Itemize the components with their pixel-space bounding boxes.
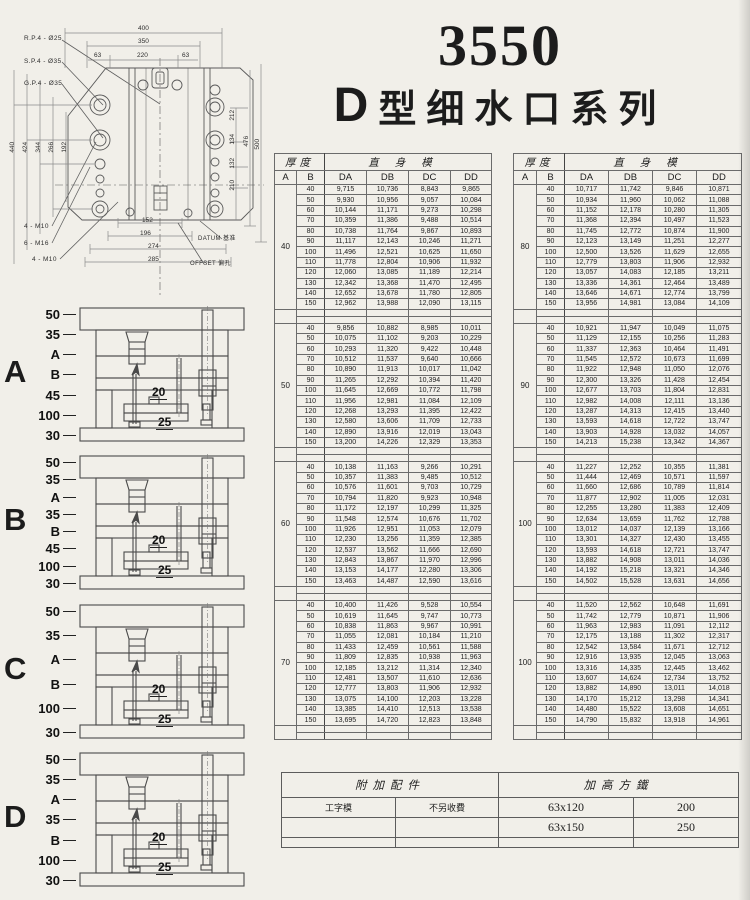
spec-value: 11,470 xyxy=(409,278,451,288)
spec-row: 13012,58013,60611,70912,733 xyxy=(275,417,492,427)
spec-row: 40409,71510,7368,8439,865 xyxy=(275,185,492,195)
spec-row: 11013,30114,32712,43013,455 xyxy=(514,535,742,545)
spec-value: 13,063 xyxy=(697,653,742,663)
spec-value: 13,301 xyxy=(565,535,609,545)
spec-value: 13,326 xyxy=(609,375,653,385)
thickness-b-value: 60 xyxy=(297,483,325,493)
thickness-b-value: 140 xyxy=(537,427,565,437)
thickness-b-value: 50 xyxy=(537,334,565,344)
spec-value: 11,906 xyxy=(697,611,742,621)
thickness-b-value: 150 xyxy=(537,576,565,586)
spec-value: 12,542 xyxy=(565,642,609,652)
spec-value: 12,686 xyxy=(609,483,653,493)
spec-value: 12,409 xyxy=(697,503,742,513)
spec-value: 9,485 xyxy=(409,472,451,482)
thickness-b-value: 90 xyxy=(537,375,565,385)
thickness-b-value: 40 xyxy=(537,185,565,195)
dimension-label: 100 xyxy=(24,854,76,867)
spec-row: 5011,74212,77910,87111,906 xyxy=(514,611,742,621)
spec-value: 13,988 xyxy=(367,299,409,309)
spec-value: 12,652 xyxy=(325,288,367,298)
spec-value: 10,229 xyxy=(451,334,492,344)
thickness-a-value: 40 xyxy=(275,185,297,310)
thickness-b-value: 130 xyxy=(297,694,325,704)
thickness-b-value: 50 xyxy=(537,611,565,621)
spec-row: 14014,48015,52213,60814,651 xyxy=(514,704,742,714)
inner-dim-20: 20 xyxy=(150,386,167,400)
inner-dim-20: 20 xyxy=(150,534,167,548)
spec-value: 10,938 xyxy=(409,653,451,663)
spec-value: 11,053 xyxy=(409,524,451,534)
thickness-b-value: 140 xyxy=(297,427,325,437)
spec-value: 11,820 xyxy=(367,493,409,503)
mold-section-a: A 5035AB4510030 xyxy=(4,302,266,450)
spec-row: 6011,15212,17810,28011,305 xyxy=(514,205,742,215)
spec-row: 9011,26512,29210,39411,420 xyxy=(275,375,492,385)
spec-value: 10,576 xyxy=(325,483,367,493)
spec-value: 10,512 xyxy=(451,472,492,482)
spec-value: 12,430 xyxy=(653,535,697,545)
spec-value: 10,794 xyxy=(325,493,367,503)
spec-value: 14,480 xyxy=(565,704,609,714)
mold-section-b: B 5035A35B4510030 xyxy=(4,450,266,598)
thickness-b-value: 100 xyxy=(297,663,325,673)
spec-row: 12013,59314,61812,72113,747 xyxy=(514,545,742,555)
spec-value: 13,032 xyxy=(653,427,697,437)
spec-value: 13,342 xyxy=(653,437,697,447)
spec-value: 11,428 xyxy=(653,375,697,385)
spec-value: 13,903 xyxy=(565,427,609,437)
spec-value: 10,062 xyxy=(653,195,697,205)
spec-row: 509,93010,9569,05710,084 xyxy=(275,195,492,205)
spec-value: 11,383 xyxy=(367,472,409,482)
dim-220: 220 xyxy=(137,53,148,60)
spec-value: 10,571 xyxy=(653,472,697,482)
screw-note-4m10-upper: 4 - M10 xyxy=(24,224,49,231)
thickness-b-value: 50 xyxy=(297,611,325,621)
dimension-label: A xyxy=(24,348,76,361)
spec-value: 12,255 xyxy=(565,503,609,513)
spec-value: 12,590 xyxy=(409,576,451,586)
spec-value: 14,313 xyxy=(609,406,653,416)
spec-value: 12,317 xyxy=(697,632,742,642)
spec-value: 10,838 xyxy=(325,621,367,631)
dimension-label: B xyxy=(24,678,76,691)
thickness-b-value: 50 xyxy=(537,472,565,482)
spec-value: 12,916 xyxy=(565,653,609,663)
spec-value: 10,075 xyxy=(325,334,367,344)
thickness-b-value: 50 xyxy=(297,334,325,344)
spec-value: 9,422 xyxy=(409,344,451,354)
spec-value: 15,832 xyxy=(609,715,653,725)
spec-value: 11,537 xyxy=(367,354,409,364)
spec-value: 13,538 xyxy=(451,704,492,714)
spec-value: 13,747 xyxy=(697,545,742,555)
spec-value: 13,608 xyxy=(653,704,697,714)
col-header-dd: DD xyxy=(697,171,742,185)
thickness-b-value: 80 xyxy=(537,226,565,236)
spec-value: 11,426 xyxy=(367,601,409,611)
section-dimension-stack: 5035AB10030 xyxy=(24,605,76,739)
spec-value: 12,948 xyxy=(609,365,653,375)
thickness-b-value: 40 xyxy=(537,462,565,472)
dimension-label: 30 xyxy=(24,429,76,442)
spec-value: 13,752 xyxy=(697,673,742,683)
dimension-label: 50 xyxy=(24,308,76,321)
spacer-row xyxy=(275,732,492,739)
spec-value: 12,634 xyxy=(565,514,609,524)
spec-row: 1004011,22712,25210,35511,381 xyxy=(514,462,742,472)
thickness-b-value: 150 xyxy=(297,437,325,447)
spec-value: 10,736 xyxy=(367,185,409,195)
spec-value: 14,335 xyxy=(609,663,653,673)
spec-value: 11,359 xyxy=(409,535,451,545)
riser-size: 63x120 xyxy=(499,798,634,818)
spec-value: 11,778 xyxy=(325,257,367,267)
spec-value: 10,448 xyxy=(451,344,492,354)
spec-row: 12013,88214,89013,01114,018 xyxy=(514,684,742,694)
spec-value: 12,779 xyxy=(565,257,609,267)
spec-value: 11,251 xyxy=(653,236,697,246)
spec-value: 10,246 xyxy=(409,236,451,246)
spec-value: 8,985 xyxy=(409,323,451,333)
spec-value: 13,316 xyxy=(565,663,609,673)
thickness-b-value: 100 xyxy=(537,663,565,673)
spec-value: 10,011 xyxy=(451,323,492,333)
spec-value: 14,341 xyxy=(697,694,742,704)
spec-value: 14,487 xyxy=(367,576,409,586)
spec-value: 10,666 xyxy=(451,354,492,364)
thickness-b-value: 100 xyxy=(297,386,325,396)
spec-value: 12,340 xyxy=(451,663,492,673)
spec-value: 12,513 xyxy=(409,704,451,714)
spec-value: 13,043 xyxy=(451,427,492,437)
spec-value: 13,085 xyxy=(367,268,409,278)
spec-value: 9,967 xyxy=(409,621,451,631)
spec-value: 13,631 xyxy=(653,576,697,586)
spec-table-left: 厚度 直身模 A B DA DB DC DD 40409,71510,7368,… xyxy=(274,153,492,740)
catalog-page: 3550 D 型细水口系列 xyxy=(0,0,750,900)
spec-value: 14,037 xyxy=(609,524,653,534)
spec-row: 14013,38514,41012,51313,538 xyxy=(275,704,492,714)
spec-value: 13,848 xyxy=(451,715,492,725)
spec-value: 11,491 xyxy=(697,344,742,354)
spec-row: 8012,25513,28011,38312,409 xyxy=(514,503,742,513)
spec-value: 12,454 xyxy=(697,375,742,385)
spec-value: 9,747 xyxy=(409,611,451,621)
dimension-label: 35 xyxy=(24,773,76,786)
spec-row: 604010,13811,1639,26610,291 xyxy=(275,462,492,472)
spec-value: 11,588 xyxy=(451,642,492,652)
spec-value: 11,189 xyxy=(409,268,451,278)
dim-500: 500 xyxy=(255,139,262,150)
spec-value: 12,982 xyxy=(565,396,609,406)
spec-value: 13,012 xyxy=(565,524,609,534)
spec-value: 11,420 xyxy=(451,375,492,385)
spec-value: 13,188 xyxy=(609,632,653,642)
spec-value: 10,956 xyxy=(367,195,409,205)
spec-value: 10,906 xyxy=(409,257,451,267)
dim-274: 274 xyxy=(148,244,159,251)
thickness-b-value: 100 xyxy=(537,524,565,534)
spec-value: 13,882 xyxy=(565,555,609,565)
spec-value: 11,117 xyxy=(325,236,367,246)
spec-value: 9,856 xyxy=(325,323,367,333)
thickness-b-value: 150 xyxy=(537,715,565,725)
spec-value: 11,742 xyxy=(609,185,653,195)
spec-row: 9012,63413,65911,76212,788 xyxy=(514,514,742,524)
spec-value: 10,882 xyxy=(367,323,409,333)
dimension-label: 100 xyxy=(24,409,76,422)
spec-value: 12,774 xyxy=(653,288,697,298)
thickness-b-value: 80 xyxy=(297,642,325,652)
spec-row: 804010,71711,7429,84610,871 xyxy=(514,185,742,195)
spec-value: 12,469 xyxy=(609,472,653,482)
series-letter: D xyxy=(334,82,369,130)
spec-value: 12,902 xyxy=(609,493,653,503)
spec-value: 12,155 xyxy=(609,334,653,344)
spec-value: 11,088 xyxy=(697,195,742,205)
thickness-b-value: 90 xyxy=(537,236,565,246)
thickness-a-value: 50 xyxy=(275,323,297,448)
spec-value: 14,327 xyxy=(609,535,653,545)
spec-value: 13,149 xyxy=(609,236,653,246)
spec-value: 13,368 xyxy=(367,278,409,288)
thickness-header: 厚度 xyxy=(275,154,325,171)
thickness-b-value: 40 xyxy=(297,185,325,195)
spec-row: 7010,35911,3869,48810,514 xyxy=(275,216,492,226)
spec-row: 8012,54213,58411,67112,712 xyxy=(514,642,742,652)
spec-row: 14013,15314,17712,28013,306 xyxy=(275,566,492,576)
thickness-b-value: 120 xyxy=(537,406,565,416)
spec-value: 13,646 xyxy=(565,288,609,298)
spec-row: 11011,95612,98111,08412,109 xyxy=(275,396,492,406)
dimension-label: 35 xyxy=(24,508,76,521)
dimension-label: B xyxy=(24,525,76,538)
spec-row: 10012,18513,21211,31412,340 xyxy=(275,663,492,673)
col-header-dd: DD xyxy=(451,171,492,185)
spec-value: 14,367 xyxy=(697,437,742,447)
thickness-b-value: 90 xyxy=(297,375,325,385)
thickness-b-value: 140 xyxy=(537,566,565,576)
spec-value: 11,381 xyxy=(697,462,742,472)
spec-row: 6010,14411,1719,27310,298 xyxy=(275,205,492,215)
thickness-b-value: 70 xyxy=(537,632,565,642)
spec-value: 12,060 xyxy=(325,268,367,278)
spec-value: 11,496 xyxy=(325,247,367,257)
spec-value: 10,874 xyxy=(653,226,697,236)
dim-285: 285 xyxy=(148,257,159,264)
spec-value: 9,867 xyxy=(409,226,451,236)
thickness-b-value: 120 xyxy=(297,268,325,278)
dimension-label: 35 xyxy=(24,328,76,341)
spec-value: 11,922 xyxy=(565,365,609,375)
spec-value: 11,691 xyxy=(697,601,742,611)
spec-value: 11,302 xyxy=(653,632,697,642)
spec-value: 11,325 xyxy=(451,503,492,513)
spec-value: 12,805 xyxy=(451,288,492,298)
mold-section-c: C 5035AB10030 xyxy=(4,599,266,747)
spec-value: 13,321 xyxy=(653,566,697,576)
spec-value: 13,799 xyxy=(697,288,742,298)
thickness-b-value: 130 xyxy=(537,417,565,427)
spec-row: 6010,83811,8639,96710,991 xyxy=(275,621,492,631)
straight-mold-header: 直身模 xyxy=(565,154,742,171)
col-header-dc: DC xyxy=(409,171,451,185)
thickness-b-value: 60 xyxy=(537,344,565,354)
spec-value: 13,075 xyxy=(325,694,367,704)
spec-row: 15012,96213,98812,09013,115 xyxy=(275,299,492,309)
spec-value: 9,715 xyxy=(325,185,367,195)
thickness-b-value: 110 xyxy=(537,535,565,545)
spec-value: 13,166 xyxy=(697,524,742,534)
spacer-row xyxy=(514,309,742,316)
spec-row: 11012,48113,50711,61012,636 xyxy=(275,673,492,683)
riser-price: 250 xyxy=(634,818,739,838)
spec-value: 13,462 xyxy=(697,663,742,673)
spec-row: 12013,05714,08312,18513,211 xyxy=(514,268,742,278)
spec-row: 7010,79411,8209,92310,948 xyxy=(275,493,492,503)
col-header-a: A xyxy=(514,171,537,185)
riser-size: 63x150 xyxy=(499,818,634,838)
spec-value: 11,601 xyxy=(367,483,409,493)
spec-value: 13,616 xyxy=(451,576,492,586)
spec-value: 13,916 xyxy=(367,427,409,437)
spec-value: 12,951 xyxy=(367,524,409,534)
spec-value: 12,572 xyxy=(609,354,653,364)
spec-value: 11,814 xyxy=(697,483,742,493)
spec-value: 12,111 xyxy=(653,396,697,406)
dim-476: 476 xyxy=(244,136,251,147)
dimension-label: A xyxy=(24,793,76,806)
spec-value: 11,075 xyxy=(697,323,742,333)
callout-support-pin: S.P.4 - Ø35 xyxy=(24,59,62,66)
spec-value: 12,385 xyxy=(451,535,492,545)
spec-value: 15,212 xyxy=(609,694,653,704)
spec-value: 14,226 xyxy=(367,437,409,447)
spec-value: 10,084 xyxy=(451,195,492,205)
screw-note-6m16: 6 - M16 xyxy=(24,241,49,248)
spec-value: 10,871 xyxy=(653,611,697,621)
spacer-row xyxy=(514,594,742,601)
spec-value: 11,645 xyxy=(325,386,367,396)
thickness-b-value: 60 xyxy=(297,621,325,631)
section-dimension-stack: 5035A35B10030 xyxy=(24,753,76,887)
spec-value: 12,214 xyxy=(451,268,492,278)
spec-value: 11,163 xyxy=(367,462,409,472)
spec-value: 14,656 xyxy=(697,576,742,586)
spec-value: 11,050 xyxy=(653,365,697,375)
spec-value: 12,932 xyxy=(697,257,742,267)
spec-value: 13,084 xyxy=(653,299,697,309)
thickness-b-value: 120 xyxy=(297,406,325,416)
spec-value: 11,702 xyxy=(451,514,492,524)
spec-row: 13012,84313,86711,97012,996 xyxy=(275,555,492,565)
spec-value: 14,671 xyxy=(609,288,653,298)
mold-section-d: D 5035A35B10030 xyxy=(4,747,266,895)
spec-value: 13,803 xyxy=(609,257,653,267)
spec-value: 12,300 xyxy=(565,375,609,385)
spec-row: 15014,50215,52813,63114,656 xyxy=(514,576,742,586)
spec-value: 10,773 xyxy=(451,611,492,621)
spec-value: 12,185 xyxy=(653,268,697,278)
dimension-label: 45 xyxy=(24,389,76,402)
spec-row: 13013,59314,61812,72213,747 xyxy=(514,417,742,427)
thickness-b-value: 120 xyxy=(297,545,325,555)
spec-value: 10,355 xyxy=(653,462,697,472)
spec-value: 13,956 xyxy=(565,299,609,309)
spec-value: 12,277 xyxy=(697,236,742,246)
dim-132: 132 xyxy=(230,158,237,169)
spec-value: 11,386 xyxy=(367,216,409,226)
spec-row: 8011,92212,94811,05012,076 xyxy=(514,365,742,375)
spec-row: 10013,31614,33512,44513,462 xyxy=(514,663,742,673)
spec-value: 11,709 xyxy=(409,417,451,427)
spec-value: 10,921 xyxy=(565,323,609,333)
spec-value: 11,650 xyxy=(451,247,492,257)
spec-row: 5010,35711,3839,48510,512 xyxy=(275,472,492,482)
spec-value: 9,528 xyxy=(409,601,451,611)
spec-value: 12,962 xyxy=(325,299,367,309)
spec-value: 12,445 xyxy=(653,663,697,673)
col-header-da: DA xyxy=(565,171,609,185)
dim-134: 134 xyxy=(230,134,237,145)
spec-row: 6011,96312,98311,09112,112 xyxy=(514,621,742,631)
spec-value: 14,720 xyxy=(367,715,409,725)
spec-value: 10,991 xyxy=(451,621,492,631)
spec-value: 14,346 xyxy=(697,566,742,576)
thickness-b-value: 40 xyxy=(297,601,325,611)
spec-value: 10,256 xyxy=(653,334,697,344)
spec-value: 11,863 xyxy=(367,621,409,631)
thickness-b-value: 40 xyxy=(297,462,325,472)
spec-value: 12,932 xyxy=(451,684,492,694)
spacer-row xyxy=(514,587,742,594)
dim-63-right: 63 xyxy=(182,53,189,60)
spec-value: 11,084 xyxy=(409,396,451,406)
spec-value: 13,607 xyxy=(565,673,609,683)
spec-value: 10,298 xyxy=(451,205,492,215)
spec-row: 14012,65213,67811,78012,805 xyxy=(275,288,492,298)
spec-value: 11,055 xyxy=(325,632,367,642)
col-header-b: B xyxy=(297,171,325,185)
spec-value: 12,636 xyxy=(451,673,492,683)
spec-value: 14,890 xyxy=(609,684,653,694)
thickness-b-value: 120 xyxy=(537,268,565,278)
thickness-b-value: 60 xyxy=(537,205,565,215)
thickness-a-value: 90 xyxy=(514,323,537,448)
spec-value: 11,699 xyxy=(697,354,742,364)
spec-value: 10,890 xyxy=(325,365,367,375)
spec-value: 13,507 xyxy=(367,673,409,683)
scan-shadow xyxy=(738,0,750,900)
thickness-b-value: 70 xyxy=(537,216,565,226)
spec-value: 14,008 xyxy=(609,396,653,406)
thickness-b-value: 140 xyxy=(537,288,565,298)
thickness-b-value: 120 xyxy=(537,684,565,694)
spec-row: 12012,53713,56211,66612,690 xyxy=(275,545,492,555)
callout-return-pin: R.P.4 - Ø25 xyxy=(24,36,62,43)
spec-row: 5010,07511,1029,20310,229 xyxy=(275,334,492,344)
spec-value: 10,676 xyxy=(409,514,451,524)
spec-row: 12013,28714,31312,41513,440 xyxy=(514,406,742,416)
spec-value: 9,865 xyxy=(451,185,492,195)
spec-value: 9,203 xyxy=(409,334,451,344)
thickness-b-value: 90 xyxy=(297,514,325,524)
spec-value: 11,314 xyxy=(409,663,451,673)
spec-value: 11,877 xyxy=(565,493,609,503)
spec-value: 11,395 xyxy=(409,406,451,416)
